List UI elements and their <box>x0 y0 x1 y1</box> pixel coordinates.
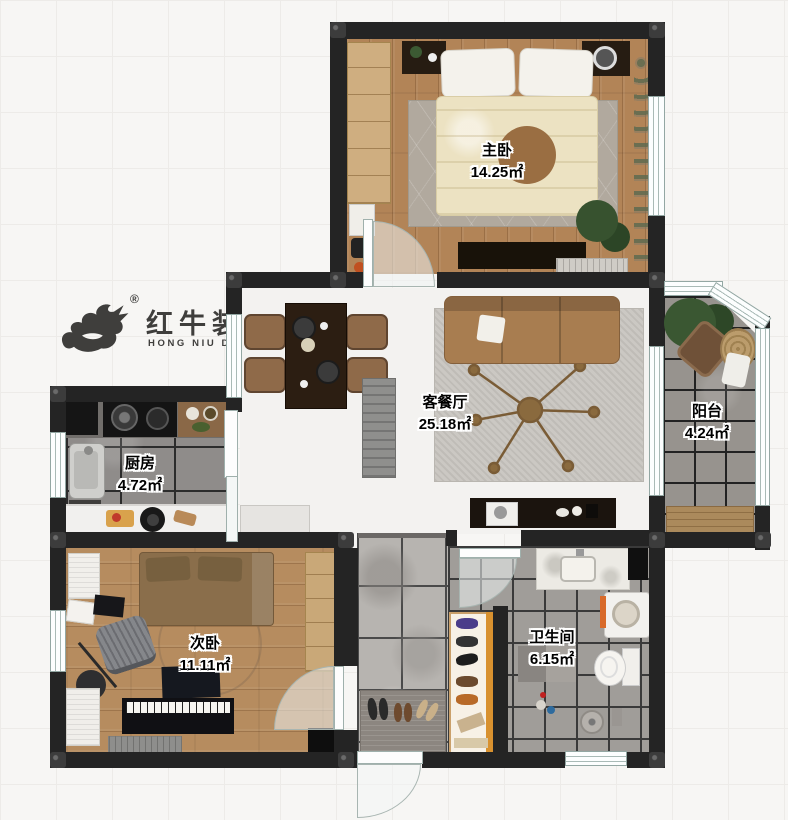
room-label-second-bedroom: 次卧 11.11㎡ <box>160 636 250 673</box>
shoe <box>404 703 412 722</box>
shower-head <box>580 710 604 734</box>
wall-corner-cap <box>50 386 66 402</box>
room-area: 25.18㎡ <box>419 417 472 432</box>
master-wardrobe <box>347 42 391 204</box>
decor-dish <box>572 506 582 516</box>
wall-segment <box>437 272 665 288</box>
entrance-door-leaf <box>357 751 423 764</box>
wall-corner-cap <box>330 272 346 288</box>
dining-hotpot <box>316 360 340 384</box>
entrance-door-swing <box>357 764 421 818</box>
desk-laptop <box>93 594 125 617</box>
bedside-lamp <box>593 46 617 70</box>
wall-garland <box>634 55 649 269</box>
cabinet-mat <box>454 738 488 748</box>
wall-segment <box>493 606 508 752</box>
kitchen-dark-cabinet <box>66 402 98 435</box>
toilet-seat <box>600 656 618 678</box>
room-name: 客餐厅 <box>422 395 467 410</box>
cabinet-shoe <box>456 676 478 687</box>
window <box>565 751 627 766</box>
wall-segment <box>226 288 242 314</box>
floor-plan: ® 红牛装饰 HONG NIU DECORATION <box>0 0 788 820</box>
master-bed-pillow-right <box>518 48 594 99</box>
vanity-basin <box>560 556 596 582</box>
window <box>648 96 665 216</box>
master-bed-pillow-left <box>440 48 516 99</box>
kitchen-sliding-door <box>226 476 238 542</box>
wall-corner-cap <box>755 532 771 548</box>
wall-corner-cap <box>338 752 354 768</box>
master-plant <box>576 200 618 242</box>
room-name: 厨房 <box>125 456 155 471</box>
room-label-balcony: 阳台 4.24㎡ <box>667 404 747 441</box>
decor-vase <box>586 504 598 518</box>
window <box>755 328 770 506</box>
bull-icon <box>58 294 138 358</box>
window <box>50 432 66 498</box>
room-label-kitchen: 厨房 4.72㎡ <box>100 456 180 493</box>
room-label-bathroom: 卫生间 6.15㎡ <box>506 630 598 667</box>
sofa <box>444 296 620 364</box>
piano-keys <box>126 702 230 713</box>
sofa-pillow <box>476 314 505 343</box>
wall-corner-cap <box>50 752 66 768</box>
wall-segment <box>50 386 228 402</box>
second-bed-pillow <box>145 556 190 582</box>
tv-object-dot <box>494 506 507 519</box>
piano-bench <box>108 736 182 753</box>
wall-segment <box>50 548 66 610</box>
room-area: 14.25㎡ <box>471 165 524 180</box>
room-area: 4.24㎡ <box>685 426 729 441</box>
room-label-master-bedroom: 主卧 14.25㎡ <box>447 143 547 180</box>
hall-white-cabinet <box>240 505 310 535</box>
wall-corner-cap <box>226 272 242 288</box>
wall-corner-cap <box>649 272 665 288</box>
dining-plate <box>300 380 308 388</box>
room-area: 6.15㎡ <box>530 652 574 667</box>
master-door-leaf <box>363 219 373 287</box>
desk-papers <box>66 688 100 746</box>
wall-corner-cap <box>338 532 354 548</box>
wall-segment <box>649 288 664 346</box>
shower-fixture <box>612 708 622 726</box>
entry-threshold <box>358 533 446 538</box>
toiletry <box>540 692 546 698</box>
dining-chair <box>244 314 286 350</box>
cabinet-shoe <box>456 694 478 705</box>
dining-centerpiece <box>301 338 315 352</box>
shelf-bowl <box>203 406 218 421</box>
balcony-bench <box>666 506 754 535</box>
cabinet-shoe <box>456 636 478 647</box>
wall-corner-cap <box>649 532 665 548</box>
second-door-leaf <box>334 666 344 730</box>
toiletry <box>547 706 555 714</box>
wall-segment <box>50 532 350 548</box>
window <box>226 314 242 398</box>
washer-drum <box>612 600 640 628</box>
brand-logo: ® 红牛装饰 HONG NIU DECORATION <box>58 294 138 363</box>
dining-plate <box>320 322 328 330</box>
stove-burner <box>146 407 169 430</box>
wall-corner-cap <box>50 532 66 548</box>
room-area: 11.11㎡ <box>180 658 231 673</box>
dining-chair <box>346 314 388 350</box>
desk-papers <box>68 553 100 599</box>
sink-basin <box>74 451 98 489</box>
wall-corner-cap <box>330 22 346 38</box>
registered-mark: ® <box>130 292 139 306</box>
master-bench-slats <box>556 258 628 273</box>
room-area: 4.72㎡ <box>118 478 162 493</box>
room-name: 主卧 <box>482 143 512 158</box>
nightstand-left <box>402 41 446 74</box>
room-label-living-dining: 客餐厅 25.18㎡ <box>390 395 500 432</box>
wall-corner-cap <box>649 22 665 38</box>
wall-segment <box>330 22 347 288</box>
vanity-faucet <box>576 549 584 556</box>
washer-accent <box>600 596 606 628</box>
wall-segment <box>446 530 457 546</box>
toiletry <box>536 700 546 710</box>
wall-corner-cap <box>649 752 665 768</box>
nightstand-plant <box>410 46 422 58</box>
nightstand-cup <box>428 53 437 62</box>
window <box>50 610 66 672</box>
second-bed-pillow <box>198 556 243 582</box>
cabinet-shoe <box>456 618 478 629</box>
wall-segment <box>422 752 565 768</box>
window <box>649 346 664 496</box>
room-name: 阳台 <box>692 404 722 419</box>
bathroom-black-box <box>628 548 648 580</box>
wall-segment <box>334 548 358 666</box>
dining-chair <box>244 357 286 393</box>
shelf-bowl <box>186 407 199 420</box>
cutting-board-food <box>112 513 121 522</box>
stove-burner <box>111 404 138 431</box>
room-name: 次卧 <box>190 636 220 651</box>
sink-faucet <box>84 446 93 455</box>
dining-hotpot <box>292 316 316 340</box>
wall-segment <box>330 22 665 39</box>
decor-dish <box>556 508 569 517</box>
wall-segment <box>50 752 350 768</box>
kitchen-pan-inner <box>147 514 159 526</box>
bathroom-door-leaf <box>459 548 521 558</box>
desk-papers <box>66 599 97 625</box>
room-name: 卫生间 <box>529 630 574 645</box>
wall-segment <box>521 530 665 546</box>
wall-segment <box>649 546 665 768</box>
kitchen-sliding-door <box>224 410 238 478</box>
shelf-greens <box>192 422 210 432</box>
wall-segment <box>649 532 770 548</box>
shoe <box>394 703 402 722</box>
